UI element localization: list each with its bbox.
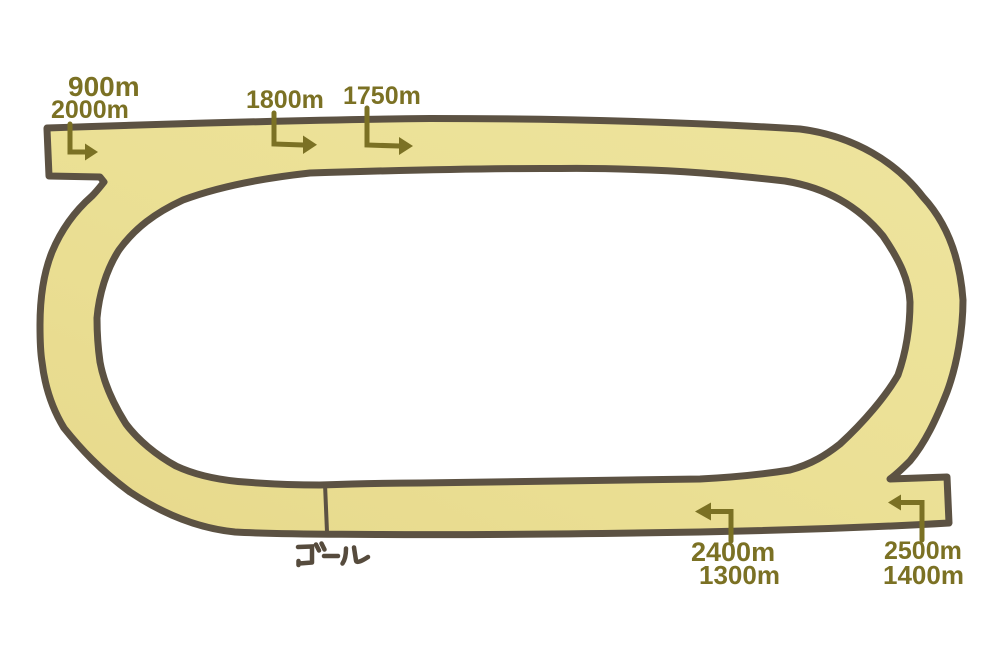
svg-text:1800m: 1800m bbox=[246, 86, 324, 114]
svg-text:1300m: 1300m bbox=[699, 560, 780, 590]
svg-text:2000m: 2000m bbox=[51, 96, 129, 124]
svg-text:1750m: 1750m bbox=[343, 82, 421, 110]
svg-text:1400m: 1400m bbox=[883, 560, 964, 590]
